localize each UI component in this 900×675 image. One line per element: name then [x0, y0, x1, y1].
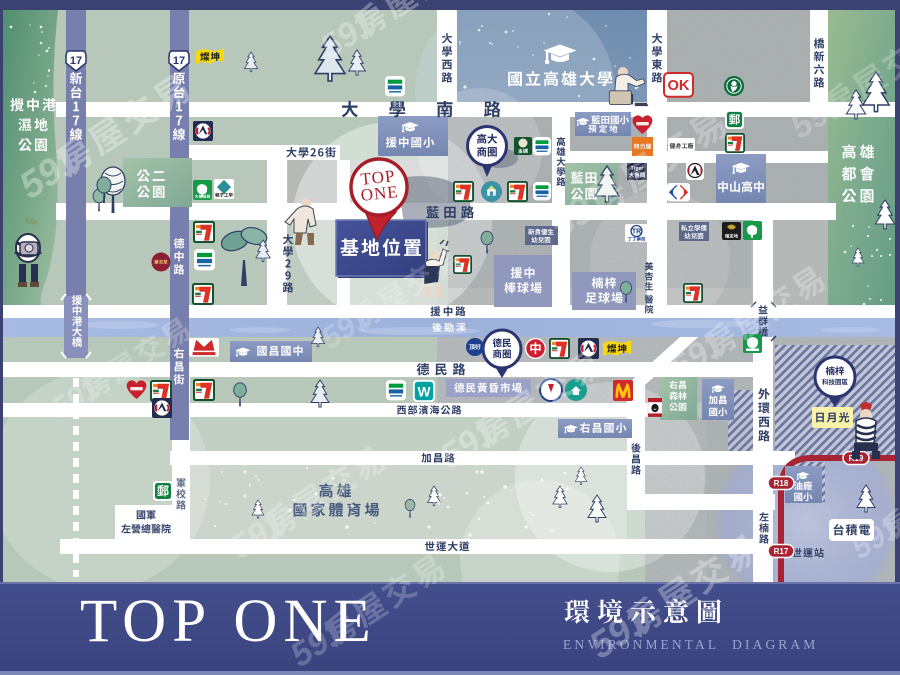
svg-text:TR: TR [632, 229, 641, 236]
svg-text:ONE: ONE [360, 182, 400, 205]
svg-text:17: 17 [173, 55, 185, 67]
svg-text:W: W [418, 384, 431, 399]
svg-text:17: 17 [70, 55, 82, 67]
svg-text:OK: OK [667, 78, 689, 94]
svg-text:R17: R17 [774, 547, 789, 556]
svg-text:R18: R18 [774, 479, 789, 488]
